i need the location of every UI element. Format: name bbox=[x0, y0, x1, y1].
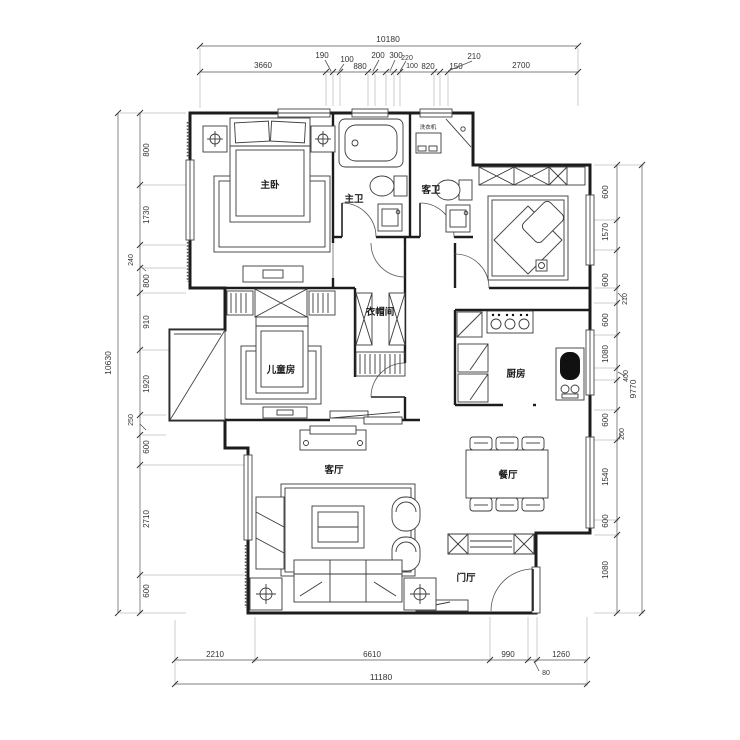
dim-right-segment: 600 bbox=[601, 273, 610, 287]
hanger-cabinet bbox=[227, 291, 253, 315]
dim-right-segment: 600 bbox=[601, 514, 610, 528]
dim-right-segment: 1080 bbox=[601, 561, 610, 579]
dim-right-segment: 600 bbox=[601, 413, 610, 427]
stove bbox=[487, 311, 533, 333]
sink bbox=[378, 204, 402, 231]
window-right-kitchen bbox=[586, 330, 594, 395]
master-bed bbox=[230, 118, 310, 222]
window-right-dining bbox=[586, 437, 594, 528]
dim-left-segment: 800 bbox=[142, 143, 151, 157]
dim-right-segment: 600 bbox=[601, 313, 610, 327]
nightstand bbox=[203, 126, 227, 152]
fridge bbox=[458, 344, 488, 402]
dim-left-segment: 800 bbox=[142, 274, 151, 288]
window-right-bedroom bbox=[586, 195, 594, 265]
wardrobe bbox=[479, 167, 585, 185]
room-label-kitchen: 厨房 bbox=[506, 368, 525, 380]
nightstand bbox=[311, 126, 335, 152]
dim-right-segment: 1570 bbox=[601, 223, 610, 241]
master-bedroom bbox=[203, 118, 335, 282]
kitchen-furniture bbox=[457, 311, 584, 402]
dim-top-segment: 2700 bbox=[512, 61, 530, 70]
sofa bbox=[294, 560, 402, 602]
guest-bathroom bbox=[416, 119, 472, 232]
plant-table bbox=[404, 578, 436, 610]
dim-top-segment: 200 bbox=[371, 51, 385, 60]
door-second-bedroom bbox=[455, 254, 489, 288]
dim-left-segment: 600 bbox=[142, 584, 151, 598]
bay-window-kids bbox=[170, 330, 225, 420]
dim-top-segment: 210 bbox=[467, 52, 481, 61]
dim-left-segment: 910 bbox=[142, 315, 151, 329]
shower bbox=[446, 119, 471, 147]
headboard-wardrobe bbox=[255, 289, 307, 317]
dim-left-segment: 250 bbox=[128, 414, 135, 426]
window-top-master-bath bbox=[352, 109, 388, 117]
dim-bottom-segment: 1260 bbox=[552, 650, 570, 659]
dim-top-segment: 150 bbox=[449, 62, 463, 71]
sliding-door-living-kids bbox=[330, 411, 402, 424]
armchair bbox=[392, 497, 420, 531]
room-label-kids-room: 儿童房 bbox=[266, 364, 296, 376]
dim-top-segment: 100 bbox=[406, 63, 418, 70]
master-bathroom bbox=[339, 119, 407, 231]
dim-top-segment: 220 bbox=[401, 55, 413, 62]
dim-top-segment: 190 bbox=[315, 51, 329, 60]
toilet bbox=[436, 180, 472, 200]
dim-left-segment: 1730 bbox=[142, 206, 151, 224]
sink bbox=[446, 205, 470, 232]
dim-bottom-segment: 990 bbox=[501, 650, 515, 659]
floor-plan-drawing: 10180 3660 190 100 880 200 300 220 100 8… bbox=[0, 0, 740, 740]
toilet bbox=[370, 176, 407, 196]
corner-counter bbox=[457, 312, 482, 337]
dim-right-segment: 600 bbox=[601, 185, 610, 199]
tv-console bbox=[300, 426, 366, 450]
dresser bbox=[243, 266, 303, 282]
dim-right-segment: 200 bbox=[619, 428, 626, 440]
side-cabinet bbox=[256, 497, 284, 569]
bathtub bbox=[339, 119, 403, 167]
living-room-furniture bbox=[250, 426, 436, 610]
coffee-table bbox=[312, 506, 364, 548]
dim-right-segment: 210 bbox=[622, 293, 629, 305]
hanger-cabinet bbox=[309, 291, 335, 315]
room-label-foyer: 门厅 bbox=[456, 572, 476, 584]
dresser bbox=[263, 407, 307, 418]
dim-top-segment: 100 bbox=[340, 55, 354, 64]
daybed bbox=[488, 196, 568, 280]
second-bedroom bbox=[479, 167, 585, 280]
dim-right-segment: 1540 bbox=[601, 468, 610, 486]
door-master-bath bbox=[342, 203, 376, 237]
dim-right-segment: 1080 bbox=[601, 345, 610, 363]
room-label-guest-bath: 客卫 bbox=[420, 184, 441, 196]
room-label-washing-machine: 洗衣机 bbox=[420, 123, 437, 131]
room-label-master-bedroom: 主卧 bbox=[260, 179, 280, 191]
dim-left-segment: 1920 bbox=[142, 375, 151, 393]
dim-left-segment: 600 bbox=[142, 440, 151, 454]
dim-left-segment: 2710 bbox=[142, 510, 151, 528]
room-label-dining-room: 餐厅 bbox=[497, 469, 518, 481]
dim-bottom-total: 11180 bbox=[370, 672, 393, 682]
room-label-living-room: 客厅 bbox=[323, 464, 344, 476]
washing-machine bbox=[416, 133, 441, 153]
dim-top-segment: 820 bbox=[421, 62, 435, 71]
foyer-cabinet bbox=[448, 534, 534, 554]
window-top-guest-bath bbox=[420, 109, 452, 117]
plant-table bbox=[250, 578, 282, 610]
kids-bed bbox=[256, 317, 308, 393]
window-top-master bbox=[278, 109, 330, 117]
kitchen-sink bbox=[556, 348, 584, 400]
dim-left-segment: 240 bbox=[128, 254, 135, 266]
dim-top-segment: 3660 bbox=[254, 61, 272, 70]
dim-left-total: 10630 bbox=[103, 351, 113, 375]
dim-right-segment: 400 bbox=[623, 370, 630, 382]
room-label-master-bath: 主卫 bbox=[344, 193, 364, 205]
dim-top-segment: 880 bbox=[353, 62, 367, 71]
kids-room-furniture bbox=[227, 289, 335, 418]
dim-top-total: 10180 bbox=[376, 34, 400, 44]
dim-bottom-segment: 6610 bbox=[363, 650, 381, 659]
door-entry bbox=[491, 567, 540, 613]
room-label-cloakroom: 衣帽间 bbox=[366, 306, 395, 318]
dim-bottom-segment: 2210 bbox=[206, 650, 224, 659]
floor-plan-page: 10180 3660 190 100 880 200 300 220 100 8… bbox=[0, 0, 740, 740]
door-master-suite bbox=[333, 243, 405, 278]
dim-bottom-segment: 80 bbox=[542, 670, 550, 677]
